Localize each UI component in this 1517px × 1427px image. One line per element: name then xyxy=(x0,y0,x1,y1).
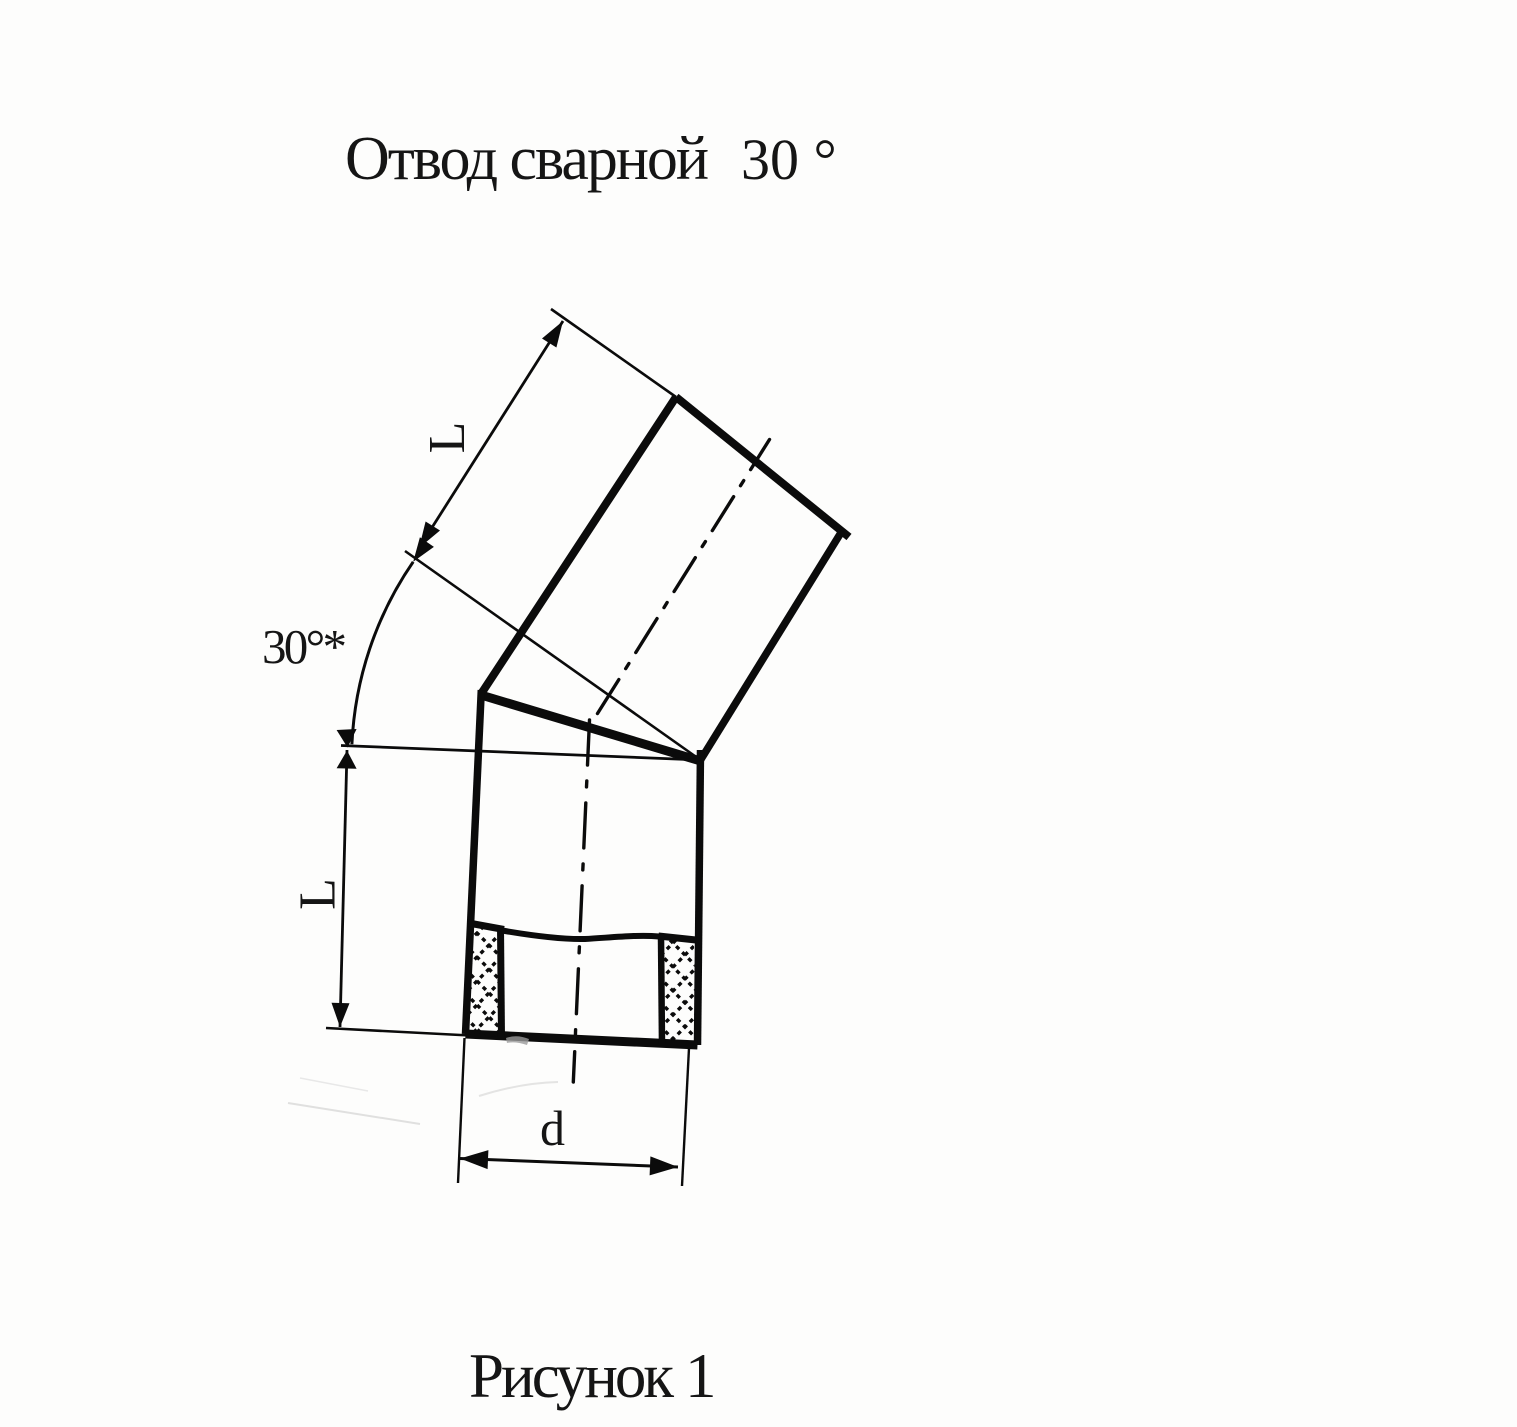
svg-text:d: d xyxy=(540,1100,565,1156)
svg-text:L: L xyxy=(290,878,347,910)
svg-text:1: 1 xyxy=(685,1341,717,1411)
svg-text:Рисунок: Рисунок xyxy=(469,1341,674,1411)
svg-text:Отвод сварной: Отвод сварной xyxy=(345,125,709,193)
svg-text:30°*: 30°* xyxy=(262,619,347,674)
svg-text:L: L xyxy=(419,422,476,454)
svg-text:30 °: 30 ° xyxy=(741,127,837,192)
